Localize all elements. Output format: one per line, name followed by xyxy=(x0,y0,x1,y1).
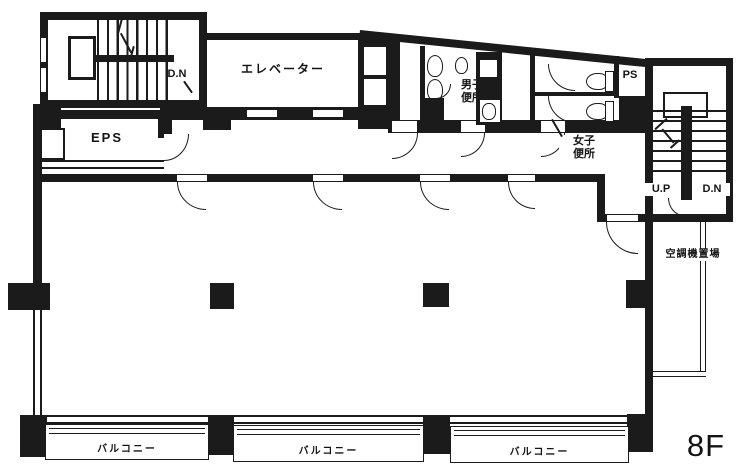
door-gap xyxy=(420,175,450,181)
wall xyxy=(164,100,172,134)
column xyxy=(423,283,449,307)
shaft-compartment xyxy=(364,79,386,105)
leader-line xyxy=(183,81,193,94)
ps-label: PS xyxy=(613,69,647,82)
balcony-1: バルコニー xyxy=(45,424,209,460)
wall xyxy=(619,96,648,120)
wall xyxy=(535,92,615,96)
wall xyxy=(530,52,535,124)
balcony-label: バルコニー xyxy=(299,442,359,457)
door-arc xyxy=(164,134,189,161)
door-arc xyxy=(508,182,535,209)
balcony-3: バルコニー xyxy=(450,426,629,463)
wall xyxy=(597,176,605,218)
wall xyxy=(726,58,733,222)
balcony-2: バルコニー xyxy=(233,425,424,462)
womens-toilet-label: 女子 便所 xyxy=(559,135,609,160)
door-gap xyxy=(508,175,535,181)
eps-bottom-wall xyxy=(37,160,164,169)
window-wall xyxy=(20,415,653,424)
wall xyxy=(33,183,42,283)
column xyxy=(20,416,47,457)
floor-label: 8F xyxy=(678,428,734,464)
column xyxy=(8,283,50,310)
column xyxy=(423,417,450,454)
balcony-window-band xyxy=(454,430,625,436)
womens-toilet-label-line2: 便所 xyxy=(573,148,595,160)
wall xyxy=(645,214,733,222)
womens-toilet-label-line1: 女子 xyxy=(573,135,595,147)
elevator-door xyxy=(247,109,277,118)
shaft-compartment xyxy=(364,47,386,75)
stair-divider-wall xyxy=(681,106,692,200)
wall-diagonal xyxy=(359,30,652,68)
floor-plan: D.N エレベーター 男子 便所 女子 便所 xyxy=(0,0,737,473)
door-arc xyxy=(461,133,485,157)
stair-return-wall xyxy=(68,36,96,80)
door-arc xyxy=(420,182,449,210)
wall xyxy=(645,58,733,66)
door-arc xyxy=(606,222,638,254)
wall xyxy=(199,12,207,108)
balcony-window-band xyxy=(237,429,420,435)
wall xyxy=(33,104,42,183)
door-arc xyxy=(392,133,418,159)
balcony-window-band xyxy=(49,428,205,434)
door-arc xyxy=(177,182,206,210)
door-gap xyxy=(313,175,343,181)
urinal-icon xyxy=(427,55,443,77)
door-arc xyxy=(548,64,575,91)
shaft-compartment xyxy=(480,60,497,77)
stair-landing-bar xyxy=(92,55,174,62)
column xyxy=(203,107,231,130)
door-arc xyxy=(313,182,342,210)
door-gap xyxy=(607,215,638,221)
door-gap xyxy=(392,121,417,132)
wall xyxy=(199,33,365,40)
column xyxy=(626,280,651,308)
window xyxy=(41,38,46,62)
column xyxy=(210,283,234,309)
elevator-label: エレベーター xyxy=(210,63,356,77)
wall xyxy=(645,222,653,420)
window-wall xyxy=(33,310,42,417)
toilet-tank xyxy=(605,101,614,122)
elevator-door xyxy=(313,109,343,118)
urinal-icon xyxy=(455,57,468,74)
eps-closet xyxy=(39,128,65,160)
window xyxy=(41,68,46,92)
ac-shaft-right-edge xyxy=(700,222,706,374)
ac-equipment-area-label: 空調機置場 xyxy=(647,249,737,261)
stairs-dn-right-label: D.N xyxy=(694,183,730,196)
wall xyxy=(424,98,444,124)
balcony-label: バルコニー xyxy=(97,440,157,455)
eps-label: EPS xyxy=(67,131,147,146)
ac-shaft-bottom-edge xyxy=(650,371,706,377)
balcony-label: バルコニー xyxy=(510,443,570,458)
column xyxy=(208,417,234,455)
stairs-up-label: U.P xyxy=(643,183,679,196)
wall xyxy=(645,58,653,222)
toilet-icon xyxy=(482,103,496,120)
door-gap xyxy=(177,175,207,181)
stairs-dn-label: D.N xyxy=(156,68,198,81)
column xyxy=(627,414,653,452)
